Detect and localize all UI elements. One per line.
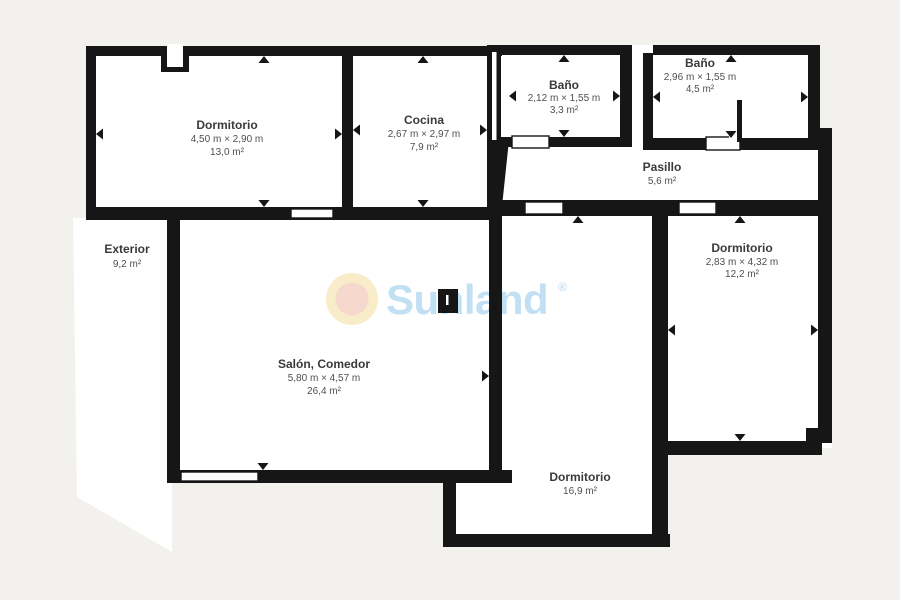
room-name: Salón, Comedor (278, 357, 370, 371)
wall-gap-between-banos (632, 45, 643, 145)
room-area: 5,6 m² (648, 176, 677, 187)
room-area: 4,5 m² (686, 84, 715, 95)
watermark-registered-icon: ® (558, 280, 567, 294)
watermark-text: Sunland (386, 276, 548, 323)
room-area: 12,2 m² (725, 269, 760, 280)
floor-salon (167, 207, 502, 483)
room-area: 7,9 m² (410, 142, 439, 153)
window-dormitorio-1 (291, 209, 333, 218)
room-area: 3,3 m² (550, 105, 579, 116)
entry-notch (167, 44, 183, 68)
room-area: 26,4 m² (307, 386, 342, 397)
room-name: Cocina (404, 113, 444, 127)
room-label-pasillo: Pasillo 5,6 m² (643, 160, 682, 187)
room-name: Dormitorio (549, 470, 610, 484)
room-name: Pasillo (643, 160, 682, 174)
room-area: 13,0 m² (210, 147, 245, 158)
door-bano-1 (512, 136, 549, 148)
partition-bano-2 (737, 100, 742, 142)
room-name: Dormitorio (711, 241, 772, 255)
room-dimensions: 2,83 m × 4,32 m (706, 257, 779, 268)
room-area: 16,9 m² (563, 486, 598, 497)
room-dimensions: 4,50 m × 2,90 m (191, 134, 264, 145)
room-name: Exterior (104, 242, 150, 256)
room-name: Baño (549, 78, 579, 92)
floor-plan: Sunland ® (0, 0, 900, 600)
room-dimensions: 2,96 m × 1,55 m (664, 72, 737, 83)
room-dimensions: 5,80 m × 4,57 m (288, 373, 361, 384)
room-dimensions: 2,12 m × 1,55 m (528, 93, 601, 104)
door-pasillo-dormitorio-bottom (525, 202, 563, 214)
window-salon (181, 472, 258, 481)
wall-gap-cocina-bano (492, 52, 497, 140)
floor-dormitorio-bottom-ext (450, 473, 510, 541)
room-dimensions: 2,67 m × 2,97 m (388, 129, 461, 140)
floor-plan-canvas: Sunland ® (0, 0, 900, 600)
logo-ring-inner (336, 283, 369, 316)
room-area: 9,2 m² (113, 259, 142, 270)
door-pasillo-dormitorio-right (679, 202, 716, 214)
room-name: Baño (685, 56, 715, 70)
room-name: Dormitorio (196, 118, 257, 132)
